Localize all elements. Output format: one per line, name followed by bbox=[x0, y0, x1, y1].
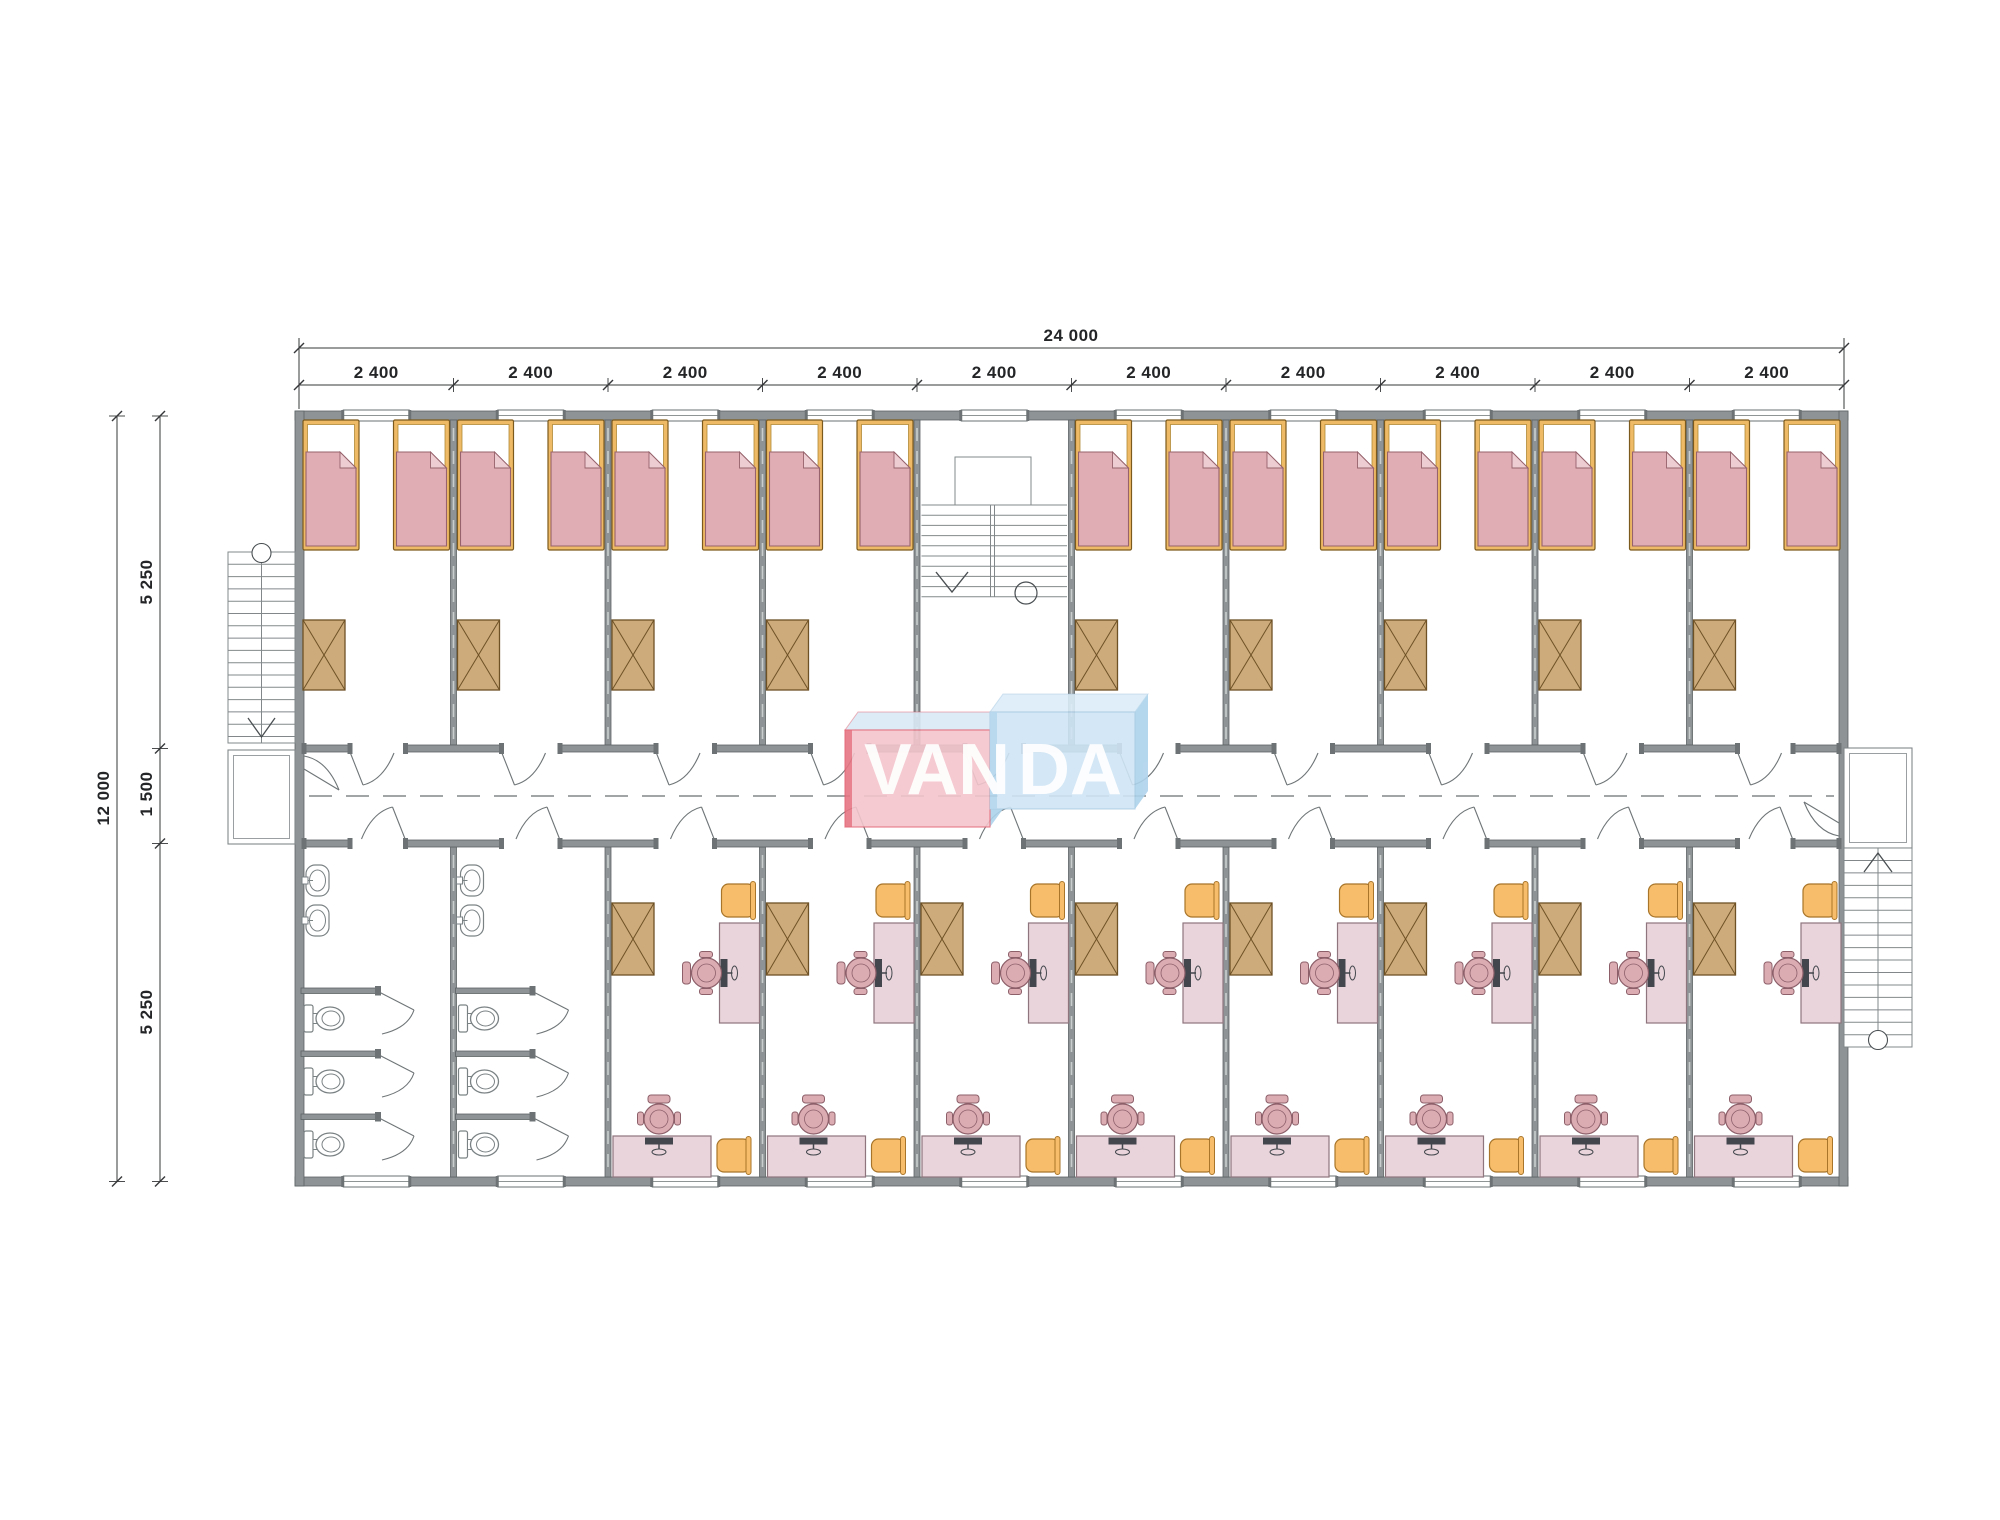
dim-corridor: 1 500 bbox=[137, 771, 156, 816]
side-chair bbox=[1799, 1137, 1833, 1175]
dim-bay: 2 400 bbox=[354, 363, 399, 382]
side-chair bbox=[717, 1137, 751, 1175]
dim-total-height: 12 000 bbox=[94, 771, 113, 826]
desk bbox=[1029, 923, 1069, 1023]
bed bbox=[458, 420, 514, 550]
desk bbox=[1801, 923, 1841, 1023]
office-chair bbox=[1146, 952, 1185, 995]
dim-bay: 2 400 bbox=[817, 363, 862, 382]
sink bbox=[302, 865, 329, 896]
side-chair bbox=[1181, 1137, 1215, 1175]
wardrobe-table bbox=[921, 903, 963, 975]
bed bbox=[1385, 420, 1441, 550]
wardrobe-table bbox=[303, 620, 345, 690]
side-chair bbox=[1490, 1137, 1524, 1175]
vanda-logo: VAN DA bbox=[864, 730, 1122, 810]
bed bbox=[703, 420, 759, 550]
side-chair bbox=[1335, 1137, 1369, 1175]
bed bbox=[1076, 420, 1132, 550]
toilet bbox=[459, 1068, 499, 1095]
office-chair bbox=[1256, 1095, 1299, 1134]
sink bbox=[457, 865, 484, 896]
toilet bbox=[304, 1068, 344, 1095]
dim-total-width: 24 000 bbox=[1044, 326, 1099, 345]
bed bbox=[1166, 420, 1222, 550]
bed bbox=[1539, 420, 1595, 550]
desk bbox=[1540, 1136, 1638, 1177]
office-chair bbox=[1764, 952, 1803, 995]
side-chair bbox=[872, 1137, 906, 1175]
office-chair bbox=[1719, 1095, 1762, 1134]
bed bbox=[857, 420, 913, 550]
side-chair bbox=[722, 882, 756, 920]
sink bbox=[457, 905, 484, 936]
bed bbox=[767, 420, 823, 550]
vanda-logo-text-left: VAN bbox=[864, 730, 1010, 810]
desk bbox=[1647, 923, 1687, 1023]
bed bbox=[303, 420, 359, 550]
wardrobe-table bbox=[1539, 620, 1581, 690]
desk bbox=[613, 1136, 711, 1177]
office-chair bbox=[837, 952, 876, 995]
desk bbox=[1386, 1136, 1484, 1177]
wardrobe-table bbox=[1076, 620, 1118, 690]
desk bbox=[720, 923, 760, 1023]
wardrobe-table bbox=[767, 620, 809, 690]
wardrobe-table bbox=[1230, 903, 1272, 975]
bed bbox=[548, 420, 604, 550]
side-chair bbox=[1494, 882, 1528, 920]
side-chair bbox=[1649, 882, 1683, 920]
central-staircase bbox=[922, 457, 1068, 604]
desk bbox=[922, 1136, 1020, 1177]
exterior-stair-left bbox=[228, 544, 295, 845]
bed bbox=[1630, 420, 1686, 550]
dim-bay: 2 400 bbox=[1435, 363, 1480, 382]
sink bbox=[302, 905, 329, 936]
side-chair bbox=[1340, 882, 1374, 920]
side-chair bbox=[1026, 1137, 1060, 1175]
desk bbox=[1231, 1136, 1329, 1177]
dim-bay: 2 400 bbox=[1744, 363, 1789, 382]
desk bbox=[1338, 923, 1378, 1023]
wardrobe-table bbox=[612, 903, 654, 975]
office-chair bbox=[1301, 952, 1340, 995]
desk bbox=[1492, 923, 1532, 1023]
floor-plan-canvas: 2 4002 4002 4002 4002 4002 4002 4002 400… bbox=[0, 0, 2000, 1520]
bed bbox=[1230, 420, 1286, 550]
desk bbox=[1695, 1136, 1793, 1177]
office-chair bbox=[1610, 952, 1649, 995]
dim-bay: 2 400 bbox=[508, 363, 553, 382]
dim-bay: 2 400 bbox=[1126, 363, 1171, 382]
dim-bay: 2 400 bbox=[1281, 363, 1326, 382]
side-chair bbox=[876, 882, 910, 920]
vanda-logo-text-right: DA bbox=[1018, 730, 1122, 810]
bed bbox=[612, 420, 668, 550]
bed bbox=[1694, 420, 1750, 550]
dimensions-top: 2 4002 4002 4002 4002 4002 4002 4002 400… bbox=[294, 338, 1849, 409]
bathrooms bbox=[301, 865, 569, 1160]
bed bbox=[1784, 420, 1840, 550]
wardrobe-table bbox=[612, 620, 654, 690]
wardrobe-table bbox=[1539, 903, 1581, 975]
desk bbox=[1183, 923, 1223, 1023]
wardrobe-table bbox=[1230, 620, 1272, 690]
bed bbox=[1321, 420, 1377, 550]
toilet bbox=[459, 1131, 499, 1158]
side-chair bbox=[1644, 1137, 1678, 1175]
desk bbox=[1077, 1136, 1175, 1177]
dim-bay: 2 400 bbox=[1590, 363, 1635, 382]
office-chair bbox=[1455, 952, 1494, 995]
office-chair bbox=[947, 1095, 990, 1134]
desk bbox=[768, 1136, 866, 1177]
dim-depth-top: 5 250 bbox=[137, 559, 156, 604]
wardrobe-table bbox=[1694, 620, 1736, 690]
wardrobe-table bbox=[1385, 903, 1427, 975]
wardrobe-table bbox=[1385, 620, 1427, 690]
dim-bay: 2 400 bbox=[972, 363, 1017, 382]
bed bbox=[394, 420, 450, 550]
office-chair bbox=[1410, 1095, 1453, 1134]
wardrobe-table bbox=[1694, 903, 1736, 975]
dim-bay: 2 400 bbox=[663, 363, 708, 382]
office-chair bbox=[638, 1095, 681, 1134]
wardrobe-table bbox=[458, 620, 500, 690]
office-chair bbox=[992, 952, 1031, 995]
wardrobe-table bbox=[1076, 903, 1118, 975]
office-chair bbox=[683, 952, 722, 995]
dim-depth-bottom: 5 250 bbox=[137, 989, 156, 1034]
toilet bbox=[459, 1005, 499, 1032]
office-chair bbox=[792, 1095, 835, 1134]
side-chair bbox=[1031, 882, 1065, 920]
toilet bbox=[304, 1005, 344, 1032]
side-chair bbox=[1803, 882, 1837, 920]
wardrobe-table bbox=[767, 903, 809, 975]
side-chair bbox=[1185, 882, 1219, 920]
office-chair bbox=[1101, 1095, 1144, 1134]
floor-plan-drawing: 2 4002 4002 4002 4002 4002 4002 4002 400… bbox=[0, 0, 2000, 1520]
toilet bbox=[304, 1131, 344, 1158]
office-chair bbox=[1565, 1095, 1608, 1134]
exterior-stair-right bbox=[1844, 748, 1912, 1050]
desk bbox=[874, 923, 914, 1023]
bed bbox=[1475, 420, 1531, 550]
